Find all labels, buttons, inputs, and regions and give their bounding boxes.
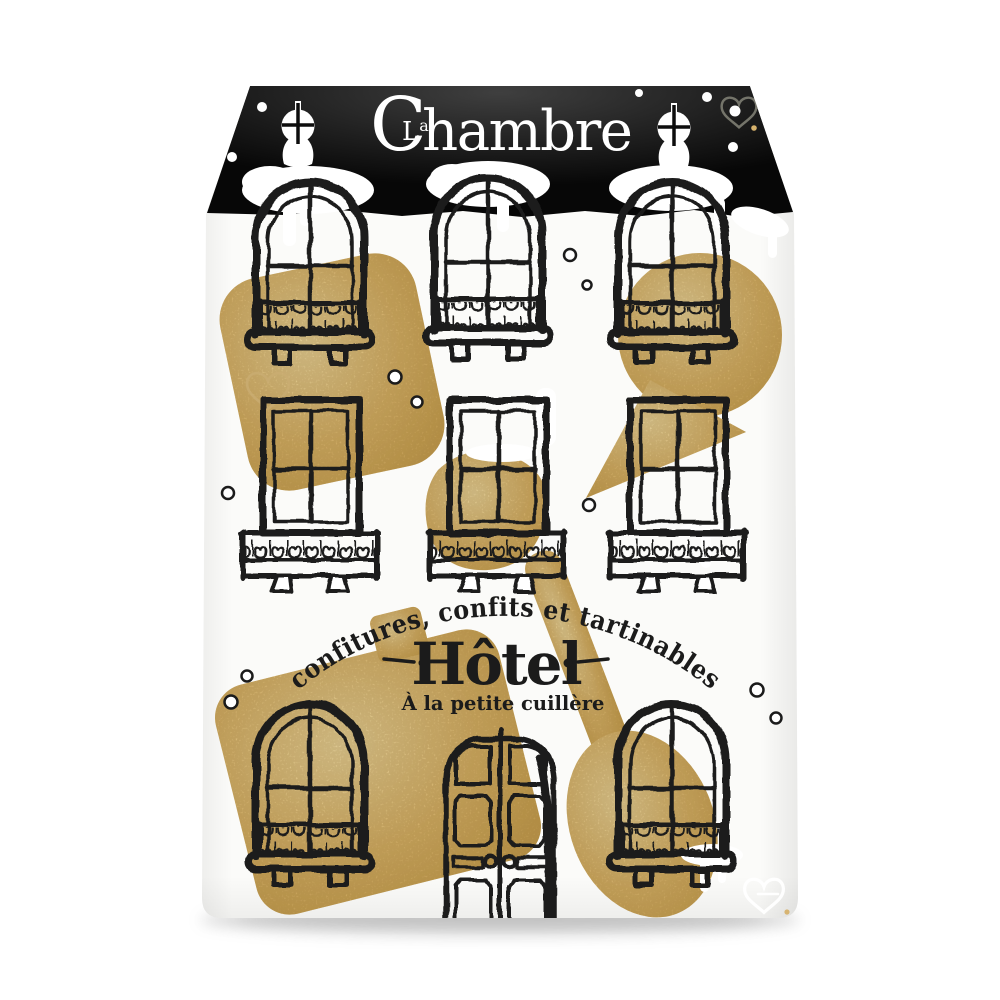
bubble — [389, 371, 402, 384]
product-name: Hôtel — [411, 630, 581, 698]
product-subtitle: À la petite cuillère — [401, 691, 605, 715]
snow-dot — [227, 152, 237, 162]
bubble — [751, 684, 764, 697]
bubble — [412, 397, 423, 408]
snow-dot — [702, 92, 712, 102]
product-packshot: Chambre La confitures, confits et tartin… — [0, 0, 1000, 1000]
gold-dot — [751, 125, 757, 131]
bubble — [242, 671, 253, 682]
product-name-block: Hôtel À la petite cuillère — [384, 630, 608, 715]
bubble — [583, 499, 595, 511]
snow-dot — [728, 142, 738, 152]
bubble — [583, 281, 592, 290]
bubble — [771, 713, 782, 724]
snow-dot — [730, 106, 741, 117]
snow-dot — [635, 89, 643, 97]
bubble — [225, 696, 238, 709]
gold-dot — [784, 909, 789, 914]
bubble — [564, 249, 576, 261]
packaging-illustration: Chambre La confitures, confits et tartin… — [0, 0, 1000, 1000]
bubble — [222, 487, 234, 499]
snow-dot — [257, 102, 267, 112]
